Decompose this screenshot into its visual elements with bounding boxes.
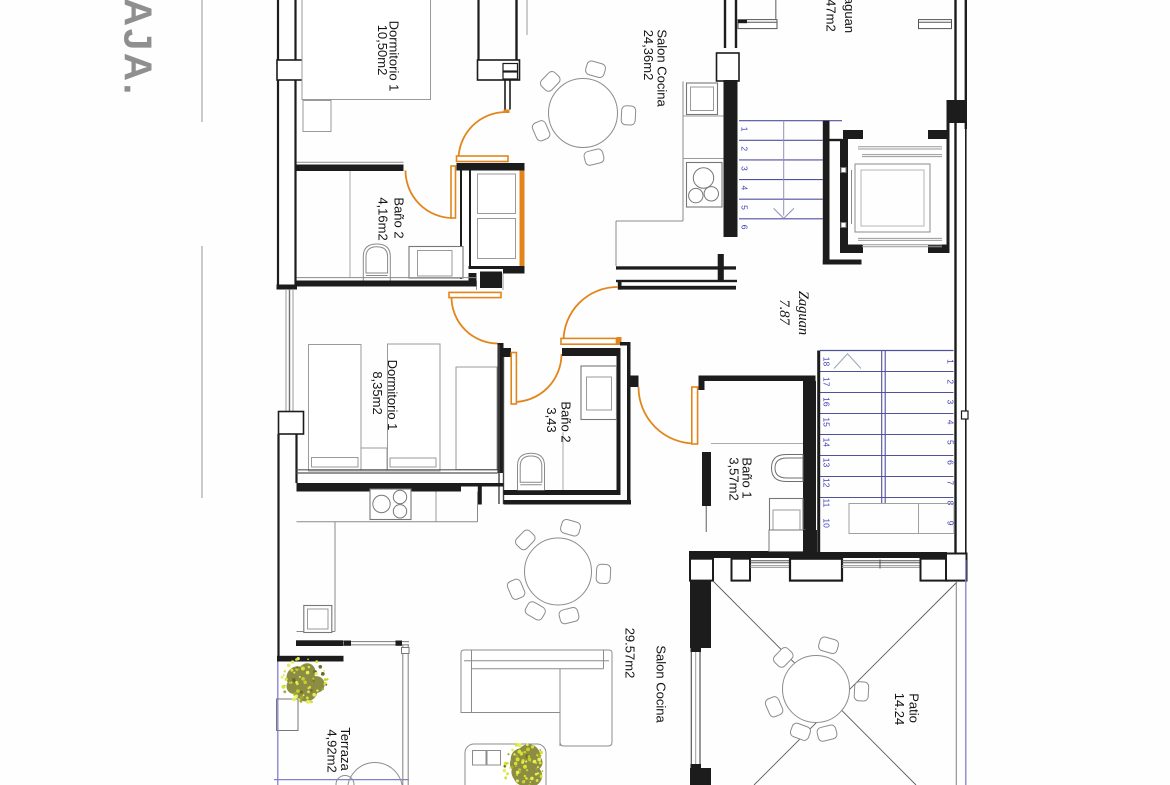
svg-text:29.57m2: 29.57m2 <box>623 628 638 679</box>
svg-text:Zaguan: Zaguan <box>842 0 857 33</box>
svg-text:1: 1 <box>946 359 956 364</box>
svg-text:AJA.: AJA. <box>116 0 159 97</box>
svg-text:3,57m2: 3,57m2 <box>727 457 742 500</box>
svg-text:6: 6 <box>740 225 750 230</box>
svg-text:14: 14 <box>822 438 832 448</box>
svg-text:5,47m2: 5,47m2 <box>824 0 839 32</box>
svg-text:2: 2 <box>740 146 750 151</box>
svg-text:24,36m2: 24,36m2 <box>641 30 656 81</box>
svg-text:7.87: 7.87 <box>776 299 792 325</box>
svg-text:4: 4 <box>946 420 956 425</box>
svg-text:1: 1 <box>740 127 750 132</box>
svg-text:Salon Cocina: Salon Cocina <box>654 645 669 723</box>
svg-text:13: 13 <box>822 458 832 468</box>
svg-text:2: 2 <box>946 379 956 384</box>
svg-text:10: 10 <box>822 518 832 528</box>
svg-text:17: 17 <box>822 377 832 387</box>
svg-text:3,43: 3,43 <box>544 407 559 432</box>
svg-text:8,35m2: 8,35m2 <box>370 371 385 414</box>
svg-text:Dormitorio 1: Dormitorio 1 <box>385 360 400 431</box>
svg-text:15: 15 <box>822 417 832 427</box>
svg-text:12: 12 <box>822 478 832 488</box>
svg-text:Baño 2: Baño 2 <box>559 401 574 442</box>
svg-text:6: 6 <box>946 460 956 465</box>
svg-text:4,16m2: 4,16m2 <box>376 197 391 240</box>
svg-text:18: 18 <box>822 357 832 367</box>
svg-text:Zaguan: Zaguan <box>795 291 811 335</box>
svg-text:7: 7 <box>946 480 956 485</box>
svg-text:4,92m2: 4,92m2 <box>325 729 340 772</box>
svg-text:Patio: Patio <box>907 693 922 723</box>
svg-text:11: 11 <box>822 498 832 507</box>
svg-text:3: 3 <box>740 166 750 171</box>
svg-text:3: 3 <box>946 400 956 405</box>
svg-text:4: 4 <box>740 186 750 191</box>
svg-text:5: 5 <box>946 440 956 445</box>
svg-text:Baño 2: Baño 2 <box>392 197 407 238</box>
svg-text:5: 5 <box>740 205 750 210</box>
svg-text:14.24: 14.24 <box>892 693 907 726</box>
svg-text:10,50m2: 10,50m2 <box>375 25 390 76</box>
svg-text:16: 16 <box>822 397 832 407</box>
